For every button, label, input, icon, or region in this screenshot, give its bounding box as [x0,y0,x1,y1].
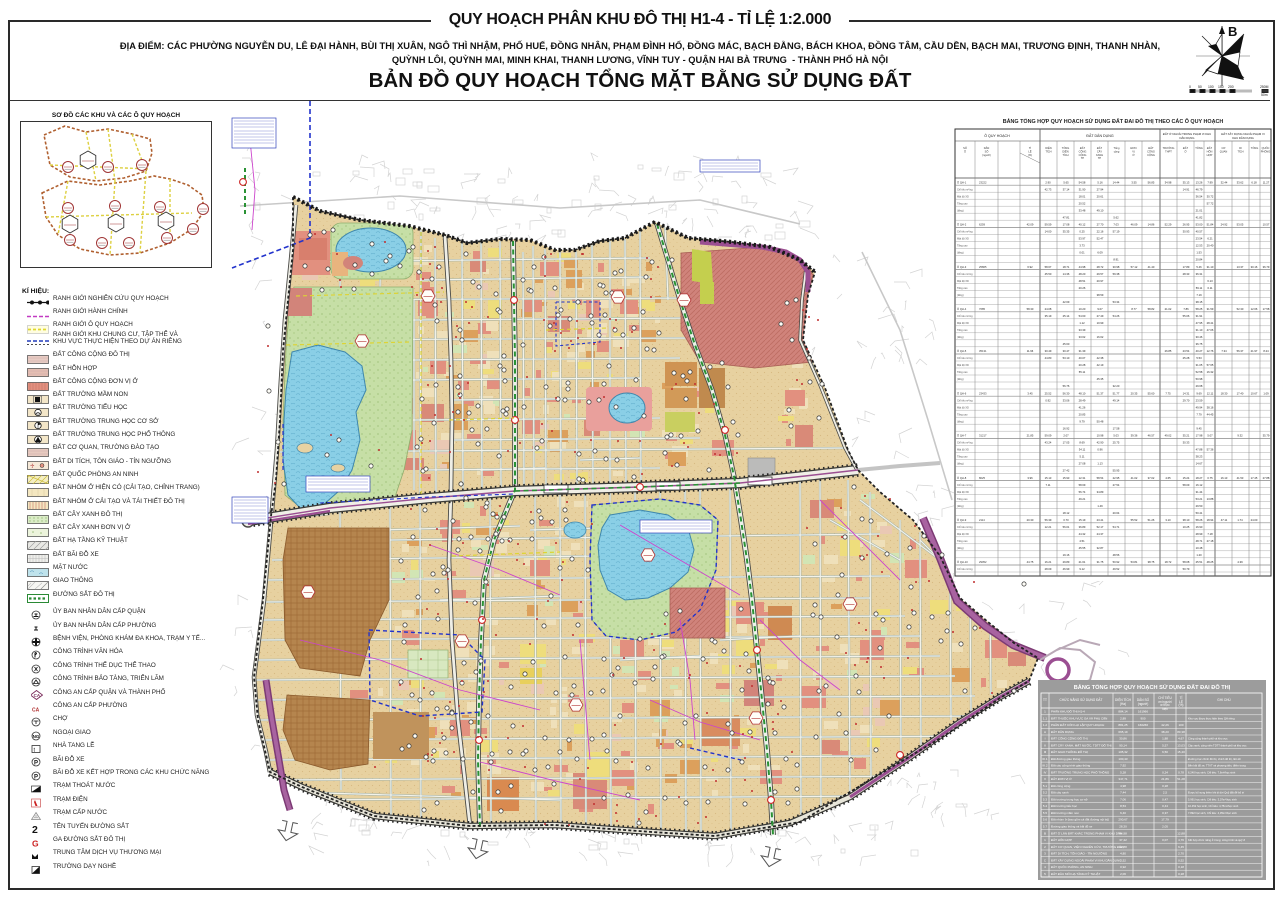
svg-text:18.12: 18.12 [1063,511,1070,515]
svg-text:36.31: 36.31 [1196,272,1203,276]
svg-text:28.72: 28.72 [1097,265,1104,269]
svg-text:Đất cây xanh: Đất cây xanh [1051,791,1069,795]
svg-text:11.96: 11.96 [1027,349,1034,353]
svg-text:12,88: 12,88 [1177,831,1185,835]
svg-text:7.18: 7.18 [1207,532,1213,536]
svg-text:0,92: 0,92 [1120,865,1126,869]
svg-text:Mật độ XD: Mật độ XD [957,364,969,367]
svg-text:27.88: 27.88 [1263,476,1270,480]
svg-text:42,26: 42,26 [1161,723,1169,727]
svg-text:40.12: 40.12 [1079,223,1086,227]
svg-text:0.11: 0.11 [1207,286,1213,290]
svg-text:5.1: 5.1 [1043,784,1048,788]
svg-text:53.81: 53.81 [1131,560,1138,564]
svg-text:55.52: 55.52 [1131,518,1138,522]
svg-text:Đất nhóm ở (bao gồm cả đất đườ: Đất nhóm ở (bao gồm cả đất đường nội bộ) [1051,818,1109,822]
svg-text:8,53: 8,53 [1120,804,1126,808]
svg-text:4,76: 4,76 [1178,838,1184,842]
svg-text:100: 100 [1178,723,1183,727]
svg-text:TT: TT [1043,698,1047,702]
svg-text:17.98: 17.98 [1196,434,1203,438]
svg-text:19.16: 19.16 [1063,553,1070,557]
svg-text:33.39: 33.39 [1079,328,1086,332]
svg-text:41.02: 41.02 [1131,476,1138,480]
svg-text:58.69: 58.69 [1079,483,1086,487]
svg-text:44.45: 44.45 [1207,412,1214,416]
svg-text:55.11: 55.11 [1079,370,1086,374]
svg-text:45.50: 45.50 [1045,272,1052,276]
svg-text:IV: IV [1044,770,1047,774]
svg-text:5,28: 5,28 [1120,770,1126,774]
svg-text:31.10: 31.10 [1196,328,1203,332]
svg-text:TP: TP [1081,156,1085,160]
svg-text:(tầng): (tầng) [957,420,964,423]
svg-text:38.59: 38.59 [1097,293,1104,297]
svg-text:14.00: 14.00 [1045,230,1052,234]
svg-text:25865: 25865 [979,265,987,269]
svg-text:57.12: 57.12 [1131,265,1138,269]
svg-text:36.75: 36.75 [1196,342,1203,346]
svg-text:58.67: 58.67 [1045,265,1052,269]
svg-text:QUAN: QUAN [1220,149,1228,153]
svg-text:10.99: 10.99 [1097,321,1104,325]
svg-text:0,78: 0,78 [1178,770,1184,774]
svg-text:Chỉ tiêu m²/ng: Chỉ tiêu m²/ng [957,442,973,445]
svg-text:17.08: 17.08 [1063,223,1070,227]
svg-text:2,05: 2,05 [1162,825,1168,829]
svg-text:58.25: 58.25 [1196,307,1203,311]
svg-text:53.21: 53.21 [1196,497,1203,501]
svg-text:14.44: 14.44 [1113,180,1120,184]
svg-text:5.2: 5.2 [1043,791,1048,795]
svg-text:46.79: 46.79 [1196,187,1203,191]
svg-text:Kết hợp chức năng ở trong; côn: Kết hợp chức năng ở trong; công trình và… [1188,838,1245,842]
svg-text:14.31: 14.31 [1183,391,1190,395]
svg-text:7.79: 7.79 [1196,412,1202,416]
svg-text:4.65: 4.65 [1165,476,1171,480]
svg-text:12.66: 12.66 [1251,307,1258,311]
svg-text:14.36: 14.36 [1063,272,1070,276]
svg-text:48.51: 48.51 [1079,279,1086,283]
svg-text:56.39: 56.39 [1045,518,1052,522]
svg-text:16.92: 16.92 [1063,426,1070,430]
svg-text:34.98: 34.98 [1165,180,1172,184]
svg-text:(tầng): (tầng) [957,209,964,212]
svg-text:58.08: 58.08 [1183,560,1190,564]
svg-text:7.892 học sinh, Chỉ tiêu: 4,35: 7.892 học sinh, Chỉ tiêu: 4,35m²/học sin… [1188,811,1237,815]
svg-text:Cây xanh, công viên TDTT thành: Cây xanh, công viên TDTT thành phố và kh… [1188,743,1247,747]
svg-text:42.09: 42.09 [1027,223,1034,227]
svg-text:(người): (người) [982,153,991,157]
svg-text:54.58: 54.58 [1079,180,1086,184]
svg-text:Đất các công trình giao thông: Đất các công trình giao thông [1051,764,1091,768]
svg-text:9.12: 9.12 [1079,567,1085,571]
svg-text:29.50: 29.50 [1196,504,1203,508]
svg-text:52.17: 52.17 [1097,525,1104,529]
svg-text:GHI CHÚ: GHI CHÚ [1217,697,1231,702]
svg-text:10.57: 10.57 [1263,223,1270,227]
svg-text:31.44: 31.44 [1196,490,1203,494]
svg-text:0.01: 0.01 [1079,251,1085,255]
svg-text:44.98: 44.98 [1079,265,1086,269]
svg-text:Mật độ XD: Mật độ XD [957,195,969,198]
svg-text:2,5: 2,5 [1163,791,1168,795]
svg-text:0.96: 0.96 [1097,448,1103,452]
svg-text:8025: 8025 [979,476,985,480]
svg-text:35.21: 35.21 [1183,434,1190,438]
svg-text:55.95: 55.95 [1113,469,1120,473]
svg-text:884,14: 884,14 [1118,710,1128,714]
svg-text:29.68: 29.68 [1196,384,1203,388]
svg-text:9.07: 9.07 [1097,307,1103,311]
svg-text:XANH: XANH [1096,153,1103,157]
svg-text:48.10: 48.10 [1079,391,1086,395]
svg-text:4,67: 4,67 [1178,737,1184,741]
svg-text:30,86: 30,86 [1119,737,1127,741]
svg-text:0,07: 0,07 [1162,838,1168,842]
svg-text:56.30: 56.30 [1063,391,1070,395]
svg-text:17.40: 17.40 [1237,391,1244,395]
svg-text:665,19: 665,19 [1118,730,1128,734]
svg-text:49.10: 49.10 [1097,208,1104,212]
svg-text:Được bổ sung thêm khi di dời Q: Được bổ sung thêm khi di dời Quỹ đất để … [1188,791,1245,795]
svg-text:23.41: 23.41 [1097,518,1104,522]
svg-text:25.51: 25.51 [1196,560,1203,564]
svg-text:Tầng cao: Tầng cao [957,540,968,543]
svg-text:150: 150 [1218,85,1224,89]
svg-text:56.37: 56.37 [1237,349,1244,353]
svg-text:29.89: 29.89 [1063,560,1070,564]
svg-text:49.21: 49.21 [1079,497,1086,501]
svg-text:42.69: 42.69 [1063,300,1070,304]
svg-text:36.79: 36.79 [1263,265,1270,269]
svg-text:(tầng): (tầng) [957,463,964,466]
svg-text:7.03: 7.03 [1113,223,1119,227]
svg-text:27.18: 27.18 [1207,539,1214,543]
svg-text:6.240 học sinh, Chỉ tiêu: 7,6m: 6.240 học sinh, Chỉ tiêu: 7,6m²/học sinh [1188,770,1236,774]
svg-text:29.70: 29.70 [1183,398,1190,402]
svg-text:55.60: 55.60 [1148,391,1155,395]
svg-text:1.20: 1.20 [1196,553,1202,557]
svg-text:35.35: 35.35 [1063,230,1070,234]
svg-text:35131: 35131 [979,349,987,353]
svg-text:29.57: 29.57 [1097,272,1104,276]
svg-text:(%): (%) [1179,703,1184,707]
svg-text:16.90: 16.90 [1196,525,1203,529]
svg-text:54.60: 54.60 [1079,314,1086,318]
svg-text:Tầng cao: Tầng cao [957,498,968,501]
svg-text:15.93: 15.93 [1063,476,1070,480]
svg-text:KHU DÂN DỤNG: KHU DÂN DỤNG [1232,135,1254,140]
svg-text:26.85: 26.85 [1165,349,1172,353]
svg-text:25.28: 25.28 [1183,356,1190,360]
svg-text:10.98: 10.98 [1097,434,1104,438]
svg-text:41.40: 41.40 [1148,265,1155,269]
svg-text:0,24: 0,24 [1162,770,1168,774]
svg-text:30.49: 30.49 [1045,349,1052,353]
svg-text:7,06: 7,06 [1120,798,1126,802]
svg-text:39.36: 39.36 [1131,434,1138,438]
svg-text:29052: 29052 [979,560,987,564]
svg-text:38.23: 38.23 [1196,455,1203,459]
svg-text:16.13: 16.13 [1221,476,1228,480]
svg-text:56.85: 56.85 [1148,180,1155,184]
svg-text:9.45: 9.45 [1196,426,1202,430]
svg-text:(%): (%) [1028,153,1032,157]
svg-text:8.24: 8.24 [1263,349,1269,353]
svg-text:Khu vực được thực hiện theo QH: Khu vực được thực hiện theo QH riêng [1188,716,1235,720]
svg-text:881,25: 881,25 [1118,723,1128,727]
svg-text:14.86: 14.86 [1148,223,1155,227]
svg-text:4,98: 4,98 [1120,784,1126,788]
svg-text:31.91: 31.91 [1196,314,1203,318]
svg-text:8.69: 8.69 [1079,441,1085,445]
svg-text:3.55: 3.55 [1131,180,1137,184]
svg-text:6,40: 6,40 [1120,811,1126,815]
svg-text:30.47: 30.47 [1063,349,1070,353]
svg-text:9.69: 9.69 [1196,391,1202,395]
svg-text:A: A [1044,730,1046,734]
svg-text:cộng: cộng [1114,149,1120,153]
svg-text:Đất trường tiểu học: Đất trường tiểu học [1051,804,1077,808]
svg-text:ĐẤT CƠ QUAN, VIỆN NGHIÊN CỨU,: ĐẤT CƠ QUAN, VIỆN NGHIÊN CỨU, TRƯỜNG ĐÀO [1051,844,1124,849]
svg-text:48.25: 48.25 [1207,560,1214,564]
svg-text:Tầng cao: Tầng cao [957,202,968,205]
svg-text:6.18: 6.18 [1251,180,1257,184]
svg-text:28.99: 28.99 [1196,532,1203,536]
svg-text:38.10: 38.10 [1183,518,1190,522]
svg-text:14.67: 14.67 [1196,462,1203,466]
svg-text:0,44: 0,44 [1162,804,1168,808]
svg-text:28.09: 28.09 [1045,567,1052,571]
svg-text:III: III [1044,750,1047,754]
svg-text:Đường giao thông và bãi đỗ xe: Đường giao thông và bãi đỗ xe [1051,824,1093,829]
svg-text:Tầng cao: Tầng cao [957,245,968,248]
svg-text:20.35: 20.35 [1131,391,1138,395]
svg-text:ĐẤT DÂN DỤNG: ĐẤT DÂN DỤNG [1086,134,1113,138]
svg-text:32.87: 32.87 [1097,546,1104,550]
svg-text:Chỉ tiêu m²/ng: Chỉ tiêu m²/ng [957,273,973,276]
svg-text:52.47: 52.47 [1097,237,1104,241]
svg-text:Chỉ tiêu m²/ng: Chỉ tiêu m²/ng [957,315,973,318]
svg-text:7.34: 7.34 [1221,349,1227,353]
svg-text:ĐẤT DÂN DỤNG: ĐẤT DÂN DỤNG [1051,729,1074,734]
svg-text:32.44: 32.44 [1221,180,1228,184]
svg-text:44.80: 44.80 [1045,356,1052,360]
svg-text:Tầng cao: Tầng cao [957,371,968,374]
svg-text:(tầng): (tầng) [957,252,964,255]
svg-text:53.10: 53.10 [1063,356,1070,360]
svg-text:Tổng: Tổng [1114,146,1120,150]
svg-text:Đất đường giao thông: Đất đường giao thông [1051,757,1081,761]
svg-text:58.82: 58.82 [1148,307,1155,311]
svg-text:50m: 50m [1261,93,1268,96]
svg-text:17.58: 17.58 [1263,307,1270,311]
svg-text:40.07: 40.07 [1079,356,1086,360]
svg-text:0,18: 0,18 [1178,865,1184,869]
svg-text:1,88: 1,88 [1162,737,1168,741]
svg-text:47.81: 47.81 [1063,215,1070,219]
svg-text:42.19: 42.19 [1097,363,1104,367]
svg-text:20.97: 20.97 [1097,279,1104,283]
svg-text:12.31: 12.31 [1079,476,1086,480]
svg-text:3.45: 3.45 [1027,391,1033,395]
svg-text:26.95: 26.95 [1183,223,1190,227]
svg-text:33.62: 33.62 [1237,180,1244,184]
svg-text:57.36: 57.36 [1207,448,1214,452]
svg-text:53.00: 53.00 [1196,223,1203,227]
svg-text:15.13: 15.13 [1045,476,1052,480]
svg-text:ĐẤT CÔNG CỘNG ĐÔ THỊ: ĐẤT CÔNG CỘNG ĐÔ THỊ [1051,736,1088,741]
svg-text:31.10: 31.10 [1207,265,1214,269]
svg-text:25.75: 25.75 [1113,441,1120,445]
svg-text:0.75: 0.75 [1207,476,1213,480]
svg-text:(Ha): (Ha) [1120,702,1126,706]
svg-text:4.51: 4.51 [1079,539,1085,543]
svg-text:46.09: 46.09 [1131,223,1138,227]
svg-text:III.1: III.1 [1042,757,1047,761]
svg-text:5.6: 5.6 [1043,818,1048,822]
svg-text:11.27: 11.27 [1263,180,1270,184]
svg-text:6.92: 6.92 [1027,265,1033,269]
svg-text:3.96: 3.96 [1027,476,1033,480]
svg-text:12.76: 12.76 [1207,349,1214,353]
svg-text:10.452 học sinh, Chỉ tiêu: 4,7: 10.452 học sinh, Chỉ tiêu: 4,75m²/học si… [1188,804,1239,808]
svg-text:III.2: III.2 [1042,764,1047,768]
svg-text:47.95: 47.95 [1196,321,1203,325]
svg-text:10.67: 10.67 [1251,391,1258,395]
svg-text:59.59: 59.59 [1045,223,1052,227]
svg-text:10.25: 10.25 [1183,525,1190,529]
svg-text:7.11: 7.11 [1045,483,1051,487]
svg-text:18.30: 18.30 [1221,391,1228,395]
svg-text:34.89: 34.89 [1097,490,1104,494]
svg-text:3.10: 3.10 [1165,518,1171,522]
svg-text:DI: DI [1239,146,1242,150]
svg-text:42.38: 42.38 [1097,356,1104,360]
svg-text:47.06: 47.06 [1207,328,1214,332]
svg-text:1.53: 1.53 [1196,251,1202,255]
svg-text:35.13: 35.13 [1183,180,1190,184]
svg-text:30.98: 30.98 [1113,265,1120,269]
svg-text:13.26: 13.26 [1196,180,1203,184]
svg-text:27.54: 27.54 [1113,483,1120,487]
svg-text:Chỉ tiêu m²/ng: Chỉ tiêu m²/ng [957,526,973,529]
svg-text:Tầng cao: Tầng cao [957,287,968,290]
svg-text:PHÂN KHU ĐÔ THỊ H1-4: PHÂN KHU ĐÔ THỊ H1-4 [1051,709,1085,714]
svg-text:0,28: 0,28 [1178,872,1184,876]
svg-text:2.90: 2.90 [1045,180,1051,184]
svg-text:ĐẤT GIAO THÔNG ĐÔ THỊ: ĐẤT GIAO THÔNG ĐÔ THỊ [1051,749,1088,754]
svg-text:49.94: 49.94 [1196,405,1203,409]
svg-text:161966: 161966 [1138,710,1148,714]
svg-text:20.61: 20.61 [1097,194,1104,198]
svg-text:51,28: 51,28 [1177,777,1185,781]
svg-text:30.46: 30.46 [1196,335,1203,339]
svg-text:31.59: 31.59 [1207,307,1214,311]
svg-text:8.77: 8.77 [1131,307,1137,311]
svg-text:52.58: 52.58 [1196,370,1203,374]
svg-text:Chỉ tiêu m²/ng: Chỉ tiêu m²/ng [957,188,973,191]
svg-text:48.71: 48.71 [1196,539,1203,543]
svg-text:7.99: 7.99 [1207,180,1213,184]
svg-text:24.37: 24.37 [1097,532,1104,536]
svg-text:5.03: 5.03 [1113,434,1119,438]
svg-text:13.37: 13.37 [1237,265,1244,269]
svg-text:47.88: 47.88 [1196,448,1203,452]
svg-text:20.52: 20.52 [1079,201,1086,205]
svg-text:56.74: 56.74 [1079,490,1086,494]
svg-text:6.21: 6.21 [1207,237,1213,241]
svg-text:44.75: 44.75 [1027,560,1034,564]
svg-text:54.26: 54.26 [1113,314,1120,318]
svg-text:Mật độ XD: Mật độ XD [957,280,969,283]
svg-text:VỊ: VỊ [1132,149,1135,153]
svg-text:28,30: 28,30 [1119,825,1127,829]
svg-text:ĐẤT DI TÍCH, TÔN GIÁO - TÍN NG: ĐẤT DI TÍCH, TÔN GIÁO - TÍN NGƯỠNG [1051,851,1108,856]
svg-text:28.49: 28.49 [1079,398,1086,402]
svg-text:100: 100 [1208,85,1214,89]
svg-text:Mật độ XD: Mật độ XD [957,533,969,536]
svg-text:6.09: 6.09 [1097,251,1103,255]
svg-text:31.05: 31.05 [1196,363,1203,367]
svg-text:44.32: 44.32 [1079,532,1086,536]
svg-text:18.72: 18.72 [1165,560,1172,564]
svg-text:6259: 6259 [979,223,985,227]
svg-text:Mật độ XD: Mật độ XD [957,238,969,241]
svg-text:5.11: 5.11 [1079,455,1085,459]
svg-text:38.75: 38.75 [1148,560,1155,564]
svg-text:5.16: 5.16 [1097,180,1103,184]
svg-text:23433: 23433 [979,391,987,395]
svg-text:ĐẤT THUỘC KHU VỰC GA VÀ PHỤ CẬ: ĐẤT THUỘC KHU VỰC GA VÀ PHỤ CẬN [1051,715,1107,720]
svg-text:12.21: 12.21 [1045,525,1052,529]
svg-text:105,32: 105,32 [1118,750,1128,754]
svg-text:48.20: 48.20 [1079,272,1086,276]
svg-text:17.58: 17.58 [1113,426,1120,430]
svg-text:ĐẤT ĐẦU MỐI HẠ TẦNG KỸ THUẬT: ĐẤT ĐẦU MỐI HẠ TẦNG KỸ THUẬT [1051,871,1101,876]
svg-text:2114: 2114 [979,518,985,522]
svg-text:THPT: THPT [1165,149,1172,153]
svg-text:ĐẤT QUỐC PHÒNG, AN NINH: ĐẤT QUỐC PHÒNG, AN NINH [1051,864,1092,869]
svg-text:18.71: 18.71 [1063,265,1070,269]
svg-text:Mật độ XD: Mật độ XD [957,322,969,325]
svg-text:45.55: 45.55 [1079,546,1086,550]
svg-text:56.76: 56.76 [1063,384,1070,388]
svg-text:23.59: 23.59 [1196,398,1203,402]
svg-text:52.29: 52.29 [1165,223,1172,227]
svg-text:V: V [1044,777,1046,781]
svg-text:1.74: 1.74 [1237,518,1243,522]
svg-text:34.11: 34.11 [1079,448,1086,452]
svg-text:20.85: 20.85 [1079,412,1086,416]
svg-text:41.82: 41.82 [1196,215,1203,219]
svg-text:Chỉ tiêu m²/ng: Chỉ tiêu m²/ng [957,399,973,402]
svg-text:(tầng): (tầng) [957,294,964,297]
svg-text:16.21: 16.21 [1045,560,1052,564]
svg-text:10.20: 10.20 [1079,307,1086,311]
svg-text:58.09: 58.09 [1183,483,1190,487]
svg-text:36.89: 36.89 [1079,525,1086,529]
svg-text:5.46: 5.46 [1196,265,1202,269]
svg-text:7685: 7685 [979,307,985,311]
svg-text:16.32: 16.32 [1207,370,1214,374]
svg-text:17,79: 17,79 [1161,818,1169,822]
svg-text:HỢP: HỢP [1207,153,1213,157]
svg-text:37.14: 37.14 [1063,187,1070,191]
svg-text:0.25: 0.25 [1079,230,1085,234]
svg-text:200: 200 [1228,85,1234,89]
